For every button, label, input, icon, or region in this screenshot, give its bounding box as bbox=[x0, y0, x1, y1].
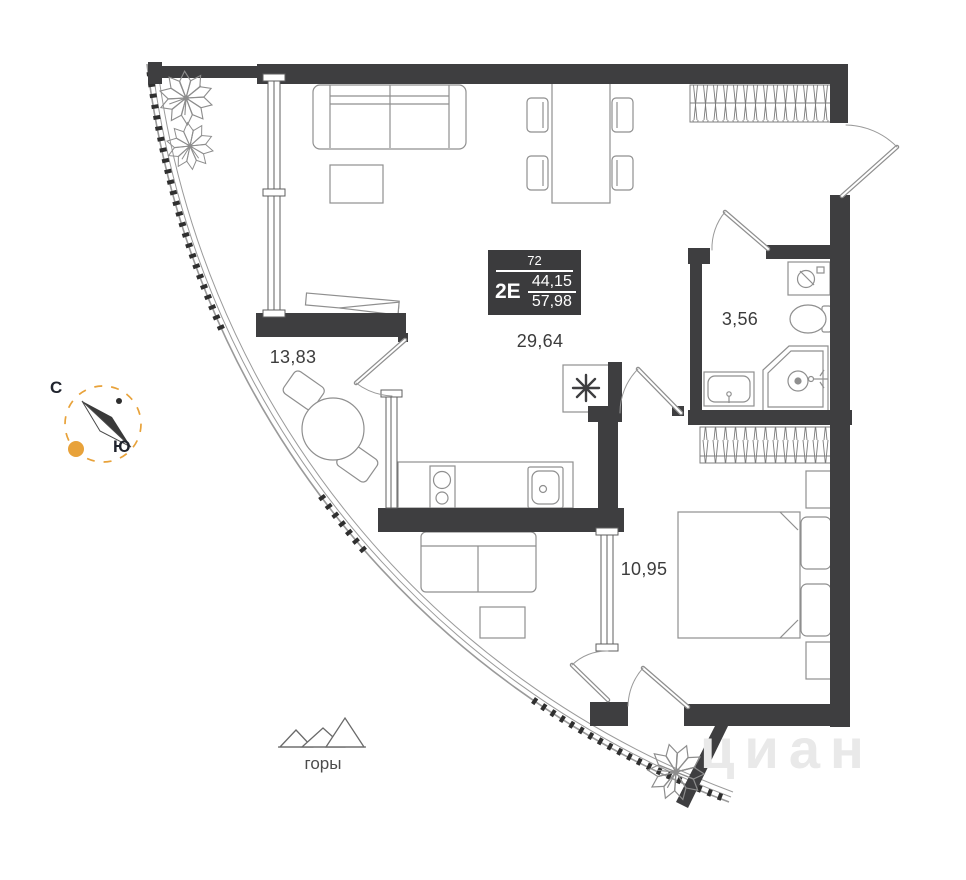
compass-dot-small bbox=[116, 398, 122, 404]
coffee-table bbox=[330, 165, 383, 203]
toilet-icon bbox=[790, 305, 831, 333]
door-bathroom bbox=[712, 212, 768, 250]
nightstand bbox=[806, 471, 834, 508]
desk bbox=[305, 293, 399, 315]
sofa-small bbox=[421, 532, 536, 592]
vent-asterisk-icon bbox=[573, 375, 599, 401]
vanity-sink-icon bbox=[704, 372, 754, 406]
compass-north-label: С bbox=[50, 378, 62, 398]
door-room1 bbox=[356, 340, 405, 396]
room-area-label: 10,95 bbox=[606, 559, 682, 580]
coffee-table-small bbox=[480, 607, 525, 638]
room-area-label: 3,56 bbox=[708, 309, 772, 330]
door-terrace bbox=[572, 651, 608, 700]
compass-south-label: Ю bbox=[113, 437, 131, 457]
compass-dot-orange bbox=[68, 441, 84, 457]
nightstand bbox=[806, 642, 834, 679]
shower-icon bbox=[763, 346, 828, 412]
pillow bbox=[801, 517, 831, 569]
kitchen-counter bbox=[398, 462, 573, 508]
plant-icon bbox=[159, 115, 221, 178]
dining-table bbox=[527, 83, 633, 203]
unit-floor: 72 bbox=[496, 253, 573, 272]
bedroom-wardrobe bbox=[700, 427, 835, 463]
unit-area-total: 57,98 bbox=[528, 293, 576, 311]
round-table-set bbox=[281, 369, 380, 484]
pillow bbox=[801, 584, 831, 636]
watermark: циан bbox=[700, 716, 874, 781]
room-area-label: 29,64 bbox=[502, 331, 578, 352]
balcony-glazing bbox=[147, 63, 733, 802]
mountains-label: горы bbox=[281, 754, 365, 774]
door-bedroom bbox=[628, 668, 688, 707]
door-entry bbox=[842, 125, 897, 196]
room-area-label: 13,83 bbox=[257, 347, 329, 368]
unit-area-living: 44,15 bbox=[528, 273, 576, 293]
kitchen-sink-icon bbox=[528, 467, 563, 508]
washing-machine-icon bbox=[788, 262, 830, 295]
sofa-living bbox=[313, 85, 466, 149]
door-hall bbox=[620, 369, 681, 413]
unit-type: 2E bbox=[493, 280, 521, 304]
bed bbox=[678, 471, 834, 679]
floor-plan-page: циан 72 2E 44,15 57,98 13,83 29,64 3,56 … bbox=[0, 0, 966, 880]
balcony-hatch-ticks bbox=[150, 72, 726, 799]
unit-info-card: 72 2E 44,15 57,98 bbox=[488, 250, 581, 315]
vent-box bbox=[563, 365, 610, 412]
mountains-icon bbox=[278, 718, 366, 747]
